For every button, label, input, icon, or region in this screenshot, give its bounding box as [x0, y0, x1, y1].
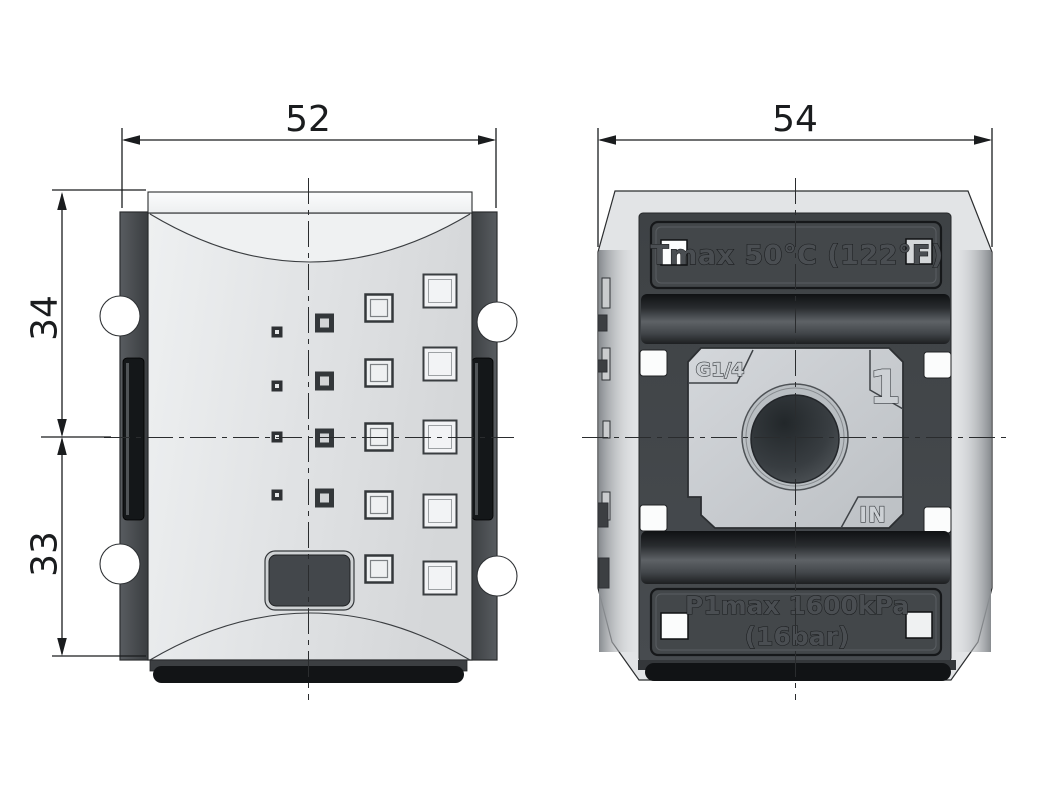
side-base-pad: [645, 663, 951, 681]
arrowhead: [974, 135, 992, 145]
arrowhead: [57, 638, 67, 656]
notch-right-upper: [477, 302, 517, 342]
dim-front-width-label: 52: [285, 99, 331, 140]
mount-slot-left: [123, 358, 144, 520]
front-top-cap: [148, 192, 472, 213]
notch-left-lower: [100, 544, 140, 584]
port-number-label: 1: [869, 360, 901, 414]
gap-left-lower: [640, 505, 667, 531]
pressure-plate-screw-right: [906, 612, 932, 638]
arrowhead: [478, 135, 496, 145]
drawing-canvas: Tmax 50°C (122°F) G1/4 1 IN: [0, 0, 1051, 803]
dim-side-width-label: 54: [772, 99, 818, 140]
port-flow-label: IN: [859, 503, 886, 527]
arrowhead: [57, 437, 67, 455]
mount-slot-right: [472, 358, 493, 520]
arrowhead: [122, 135, 140, 145]
dim-front-lower-label: 33: [25, 531, 66, 577]
gap-left-upper: [640, 350, 667, 376]
port-thread-label: G1/4: [696, 359, 745, 381]
arrowhead: [57, 192, 67, 210]
pressure-label-line1: P1max 1600kPa: [685, 591, 909, 620]
notch-right-lower: [477, 556, 517, 596]
side-right-shading: [951, 250, 991, 652]
arrowhead: [598, 135, 616, 145]
temp-label-plate: Tmax 50°C (122°F): [650, 222, 943, 288]
pressure-label-line2: (16bar): [745, 622, 850, 651]
sight-window: [265, 551, 354, 610]
side-left-shading: [599, 250, 640, 652]
arrowhead: [57, 419, 67, 437]
notch-left-upper: [100, 296, 140, 336]
gap-right-lower: [924, 507, 951, 533]
dim-front-upper-label: 34: [25, 295, 66, 341]
gap-right-upper: [924, 352, 951, 378]
temp-label-text: Tmax 50°C (122°F): [650, 240, 943, 271]
technical-drawing-page: Tmax 50°C (122°F) G1/4 1 IN: [0, 0, 1051, 803]
